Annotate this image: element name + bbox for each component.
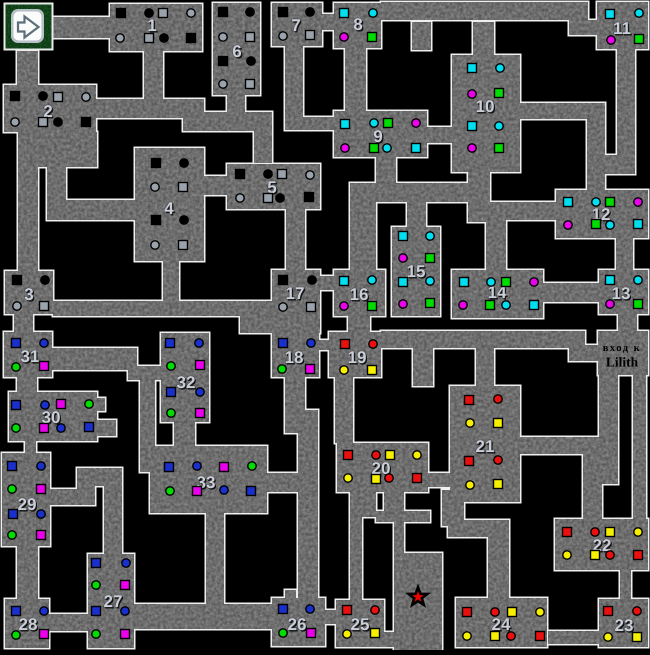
svg-text:31: 31 [21, 347, 40, 366]
svg-text:26: 26 [288, 615, 307, 634]
svg-text:27: 27 [104, 592, 123, 611]
svg-text:32: 32 [177, 373, 196, 392]
svg-text:7: 7 [291, 16, 300, 35]
svg-text:23: 23 [615, 616, 634, 635]
svg-text:13: 13 [612, 284, 631, 303]
svg-text:6: 6 [232, 42, 241, 61]
svg-text:17: 17 [286, 284, 305, 303]
svg-text:18: 18 [285, 348, 304, 367]
svg-text:1: 1 [147, 16, 156, 35]
svg-text:16: 16 [350, 285, 369, 304]
svg-text:25: 25 [351, 615, 370, 634]
svg-text:29: 29 [18, 495, 37, 514]
svg-text:28: 28 [19, 615, 38, 634]
svg-text:21: 21 [476, 437, 495, 456]
svg-text:15: 15 [407, 262, 426, 281]
svg-text:вход к: вход к [603, 343, 641, 354]
svg-text:8: 8 [353, 15, 362, 34]
svg-text:10: 10 [476, 97, 495, 116]
svg-text:4: 4 [164, 199, 174, 218]
svg-text:11: 11 [613, 19, 631, 38]
svg-text:3: 3 [24, 285, 33, 304]
svg-text:19: 19 [348, 348, 367, 367]
svg-text:Lilith: Lilith [606, 355, 639, 370]
